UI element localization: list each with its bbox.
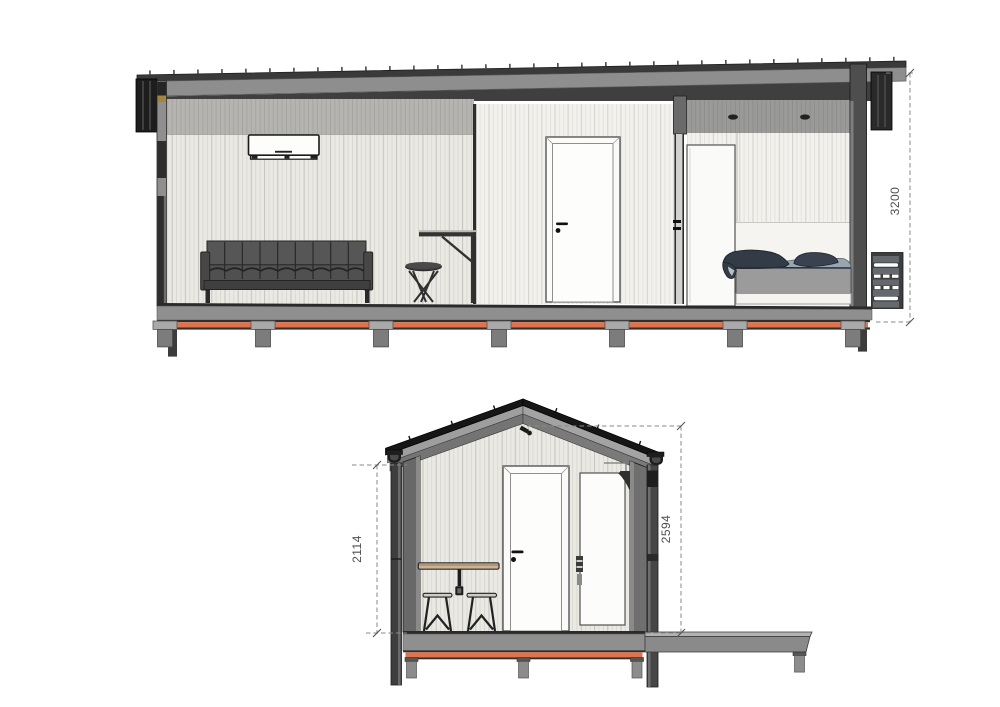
svg-text:2594: 2594 (659, 515, 673, 544)
svg-text:3200: 3200 (888, 187, 902, 216)
svg-text:2114: 2114 (350, 535, 364, 563)
